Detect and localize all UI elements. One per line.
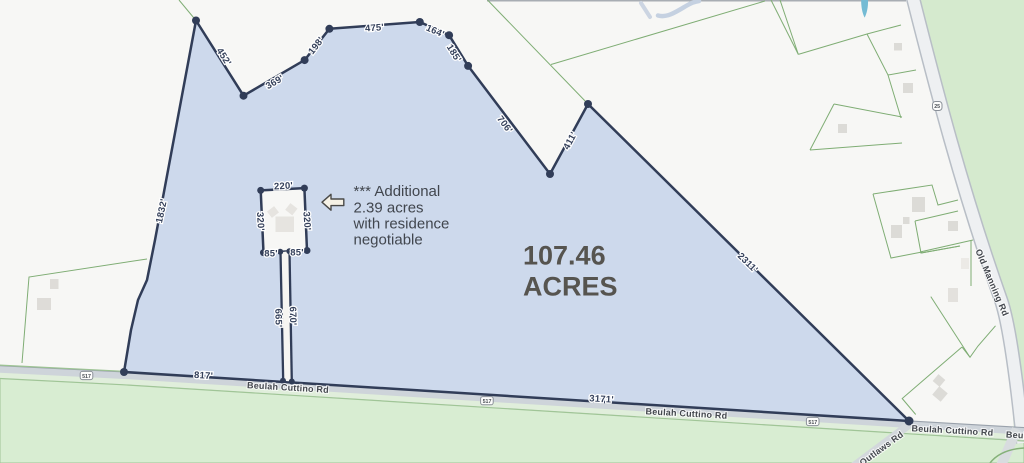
svg-text:817': 817'	[194, 370, 214, 382]
svg-text:25: 25	[934, 104, 940, 110]
svg-text:107.46: 107.46	[523, 241, 606, 271]
svg-text:negotiable: negotiable	[354, 232, 423, 249]
svg-text:3171': 3171'	[589, 393, 614, 405]
svg-text:665': 665'	[272, 308, 283, 327]
svg-text:475': 475'	[365, 22, 385, 34]
svg-text:ACRES: ACRES	[523, 272, 618, 302]
svg-text:517: 517	[82, 374, 91, 380]
svg-text:320': 320'	[300, 211, 312, 231]
svg-text:670': 670'	[287, 306, 298, 325]
svg-text:517: 517	[483, 399, 492, 405]
svg-text:*** Additional: *** Additional	[354, 183, 441, 200]
svg-text:320': 320'	[254, 212, 266, 231]
svg-text:2.39 acres: 2.39 acres	[354, 200, 424, 217]
svg-text:220': 220'	[274, 181, 293, 193]
svg-text:with residence: with residence	[353, 216, 450, 233]
svg-text:85': 85'	[290, 248, 303, 259]
svg-text:Beulah: Beulah	[1006, 430, 1024, 442]
svg-text:85': 85'	[264, 249, 277, 260]
svg-text:517: 517	[808, 420, 817, 426]
